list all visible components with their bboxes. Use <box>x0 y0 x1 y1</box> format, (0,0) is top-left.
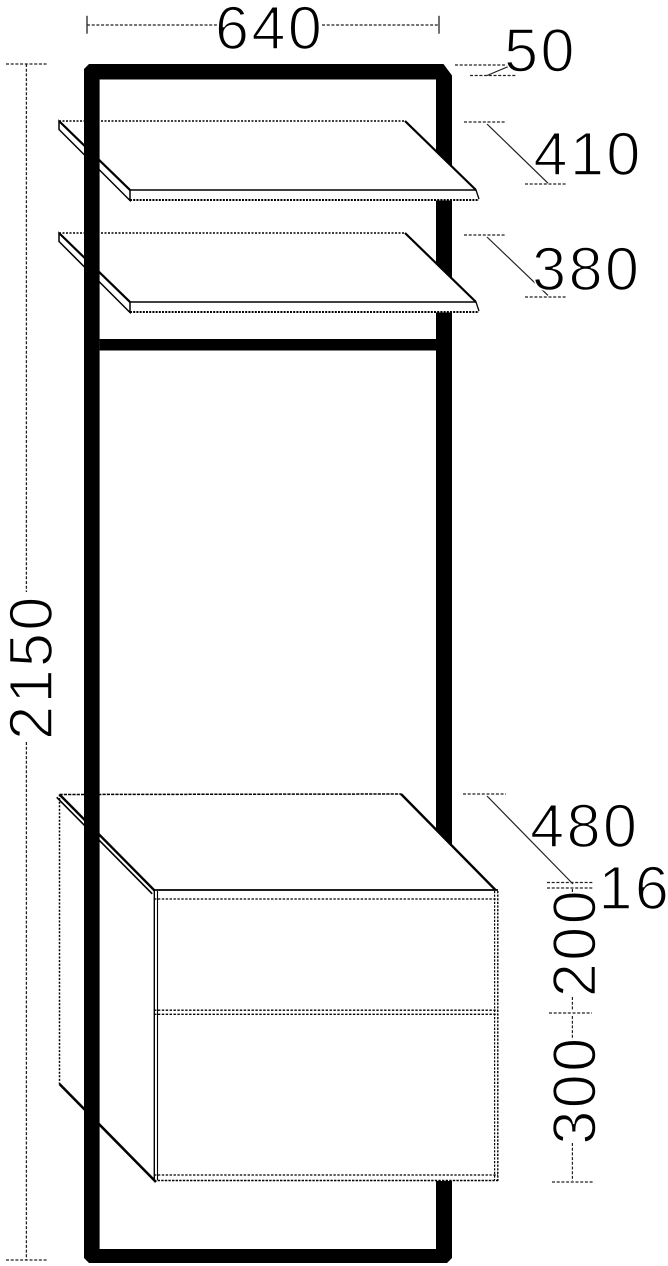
svg-text:2150: 2150 <box>0 594 65 740</box>
svg-text:300: 300 <box>541 1035 609 1144</box>
svg-text:16: 16 <box>598 854 668 922</box>
svg-text:640: 640 <box>215 0 324 62</box>
svg-text:480: 480 <box>530 792 639 860</box>
svg-text:380: 380 <box>532 235 641 303</box>
svg-text:200: 200 <box>541 888 609 997</box>
svg-text:50: 50 <box>504 17 577 85</box>
svg-text:410: 410 <box>534 120 643 188</box>
